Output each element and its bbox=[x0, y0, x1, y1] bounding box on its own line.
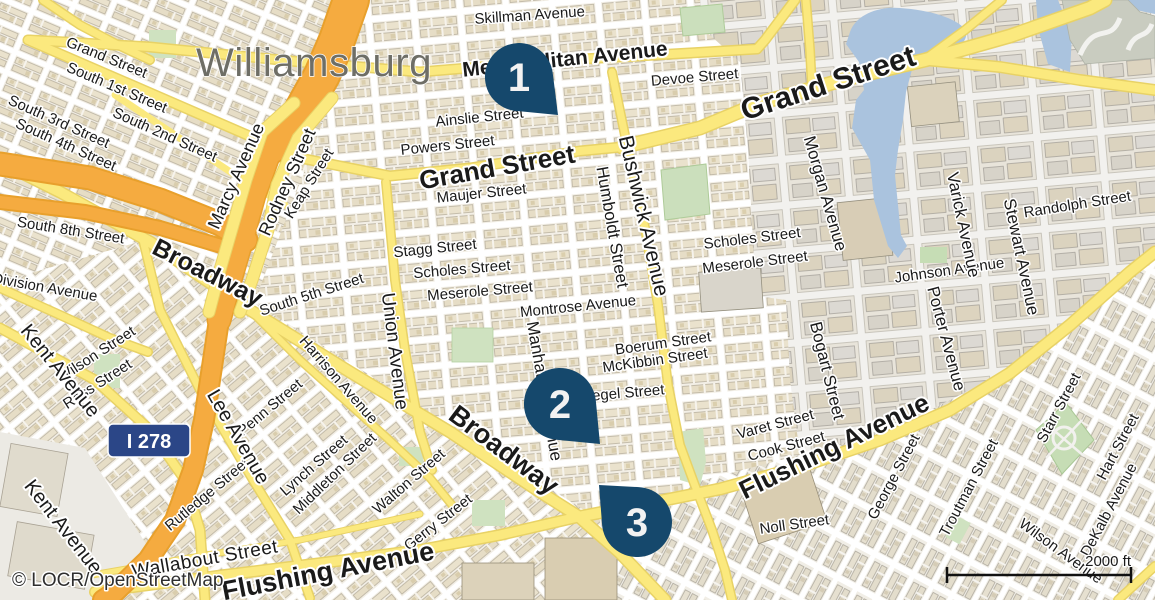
svg-text:3: 3 bbox=[626, 501, 648, 545]
svg-text:© LOCR/OpenStreetMap: © LOCR/OpenStreetMap bbox=[12, 570, 223, 591]
svg-text:1: 1 bbox=[508, 56, 530, 100]
svg-text:2: 2 bbox=[549, 383, 571, 427]
svg-text:I 278: I 278 bbox=[127, 431, 171, 453]
svg-text:2000 ft: 2000 ft bbox=[1085, 553, 1132, 570]
svg-text:Williamsburg: Williamsburg bbox=[196, 41, 432, 85]
